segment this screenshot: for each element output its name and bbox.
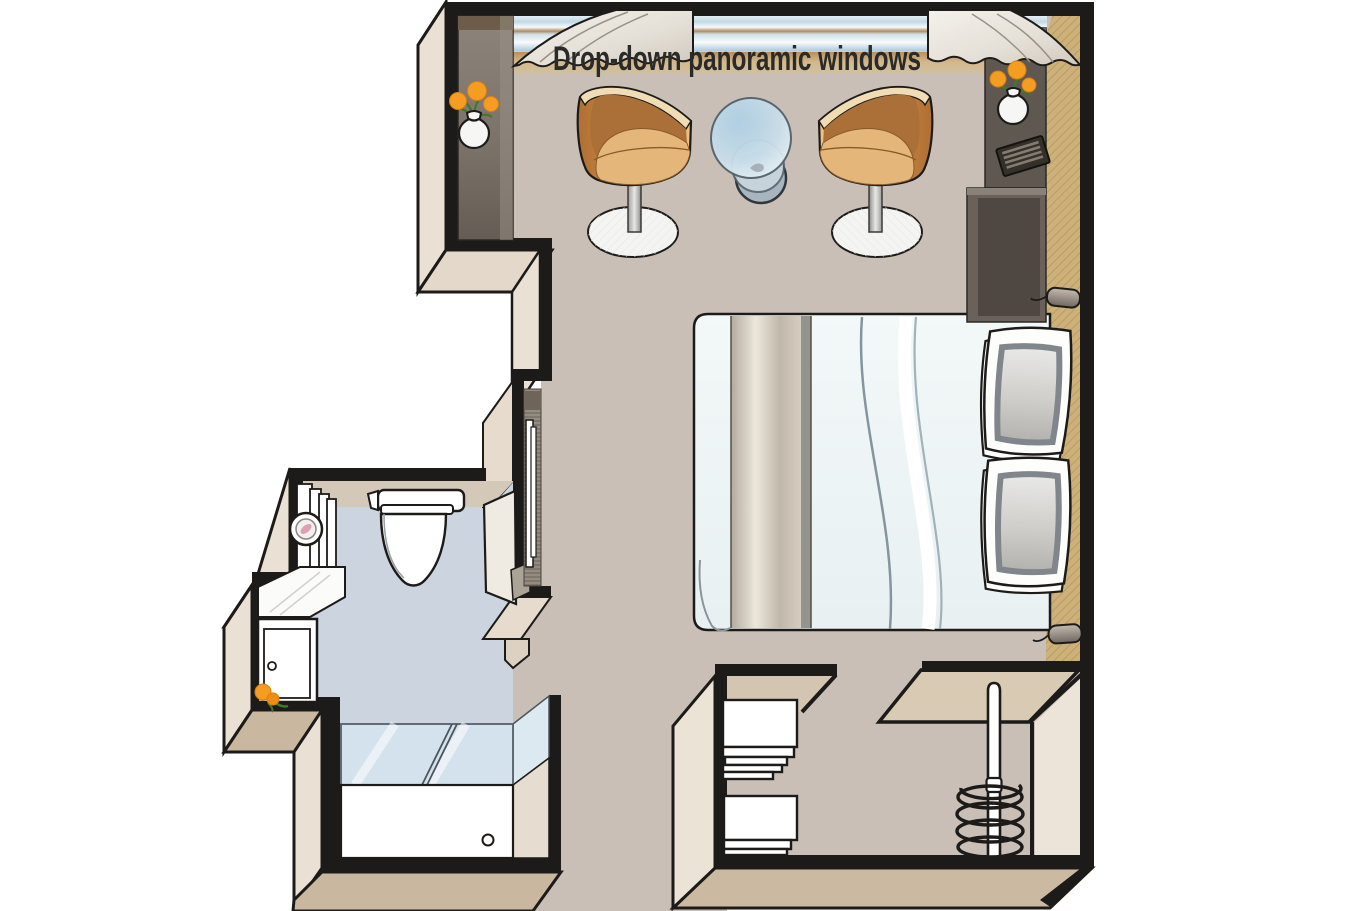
svg-text:Drop-down panoramic windows: Drop-down panoramic windows xyxy=(553,40,921,78)
